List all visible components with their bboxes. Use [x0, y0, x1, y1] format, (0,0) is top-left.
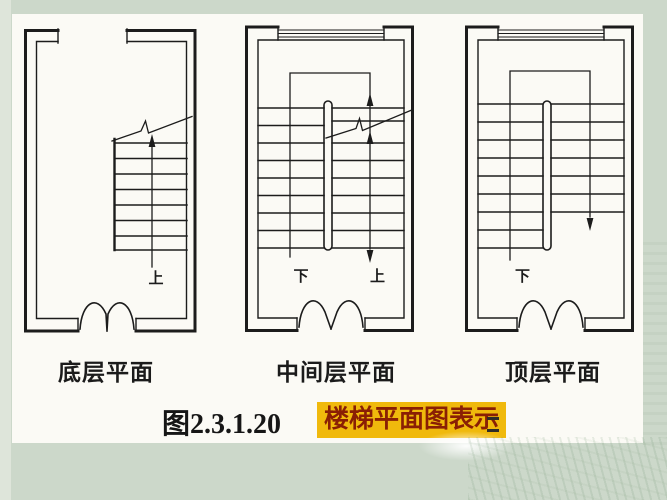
ground-floor-plan-label: 底层平面: [58, 353, 154, 387]
door-leaf-arcs: [80, 303, 134, 331]
ground-floor-plan-drawing: 上: [22, 28, 202, 336]
right-flight-treads: [332, 108, 404, 248]
stair-treads: [115, 143, 187, 250]
inner-wall: [37, 42, 187, 319]
window-glazing-lines: [278, 30, 384, 37]
center-handrail: [543, 101, 551, 250]
right-flight-treads: [551, 104, 624, 212]
direction-label-up: 上: [370, 268, 385, 285]
down-arrowhead: [587, 218, 594, 231]
slide: 上 下 上: [0, 0, 667, 500]
down-arrowhead: [367, 250, 374, 263]
door-leaf-arcs: [519, 301, 583, 329]
window-glazing-lines: [498, 30, 604, 37]
entrance-door: [80, 303, 134, 331]
middle-floor-plan-label: 中间层平面: [276, 353, 396, 387]
up-arrowhead-1: [367, 93, 374, 106]
direction-label-up: 上: [148, 270, 163, 287]
stair-flights: [258, 101, 404, 250]
top-floor-plan-label: 顶层平面: [505, 353, 601, 387]
entrance-door: [519, 301, 583, 329]
top-floor-plan-drawing: 下: [460, 22, 642, 335]
direction-label-down: 下: [293, 268, 308, 285]
outer-wall: [26, 31, 196, 332]
caption-tick-marks: [487, 417, 499, 420]
middle-floor-plan-drawing: 下 上: [240, 22, 422, 335]
outer-wall: [467, 27, 633, 331]
up-arrowhead: [149, 134, 156, 147]
direction-line: [510, 71, 590, 260]
walls: [467, 27, 633, 331]
stair-flights: [478, 101, 624, 250]
center-handrail: [324, 101, 332, 250]
left-flight-treads: [258, 108, 324, 248]
direction-label-down: 下: [515, 268, 530, 285]
walls: [26, 29, 196, 331]
stair-direction-path: [149, 134, 156, 267]
background-watermark-pattern: [468, 437, 667, 500]
left-edge-strip: [0, 0, 11, 500]
figure-number: 图2.3.1.20: [162, 402, 281, 442]
door-leaf-arcs: [299, 301, 363, 329]
stair-flight: [115, 139, 188, 250]
direction-line: [290, 73, 370, 257]
entrance-door: [299, 301, 363, 329]
up-arrowhead-2: [367, 131, 374, 144]
wall-end-caps: [58, 29, 136, 331]
background-watermark-right: [643, 240, 667, 445]
